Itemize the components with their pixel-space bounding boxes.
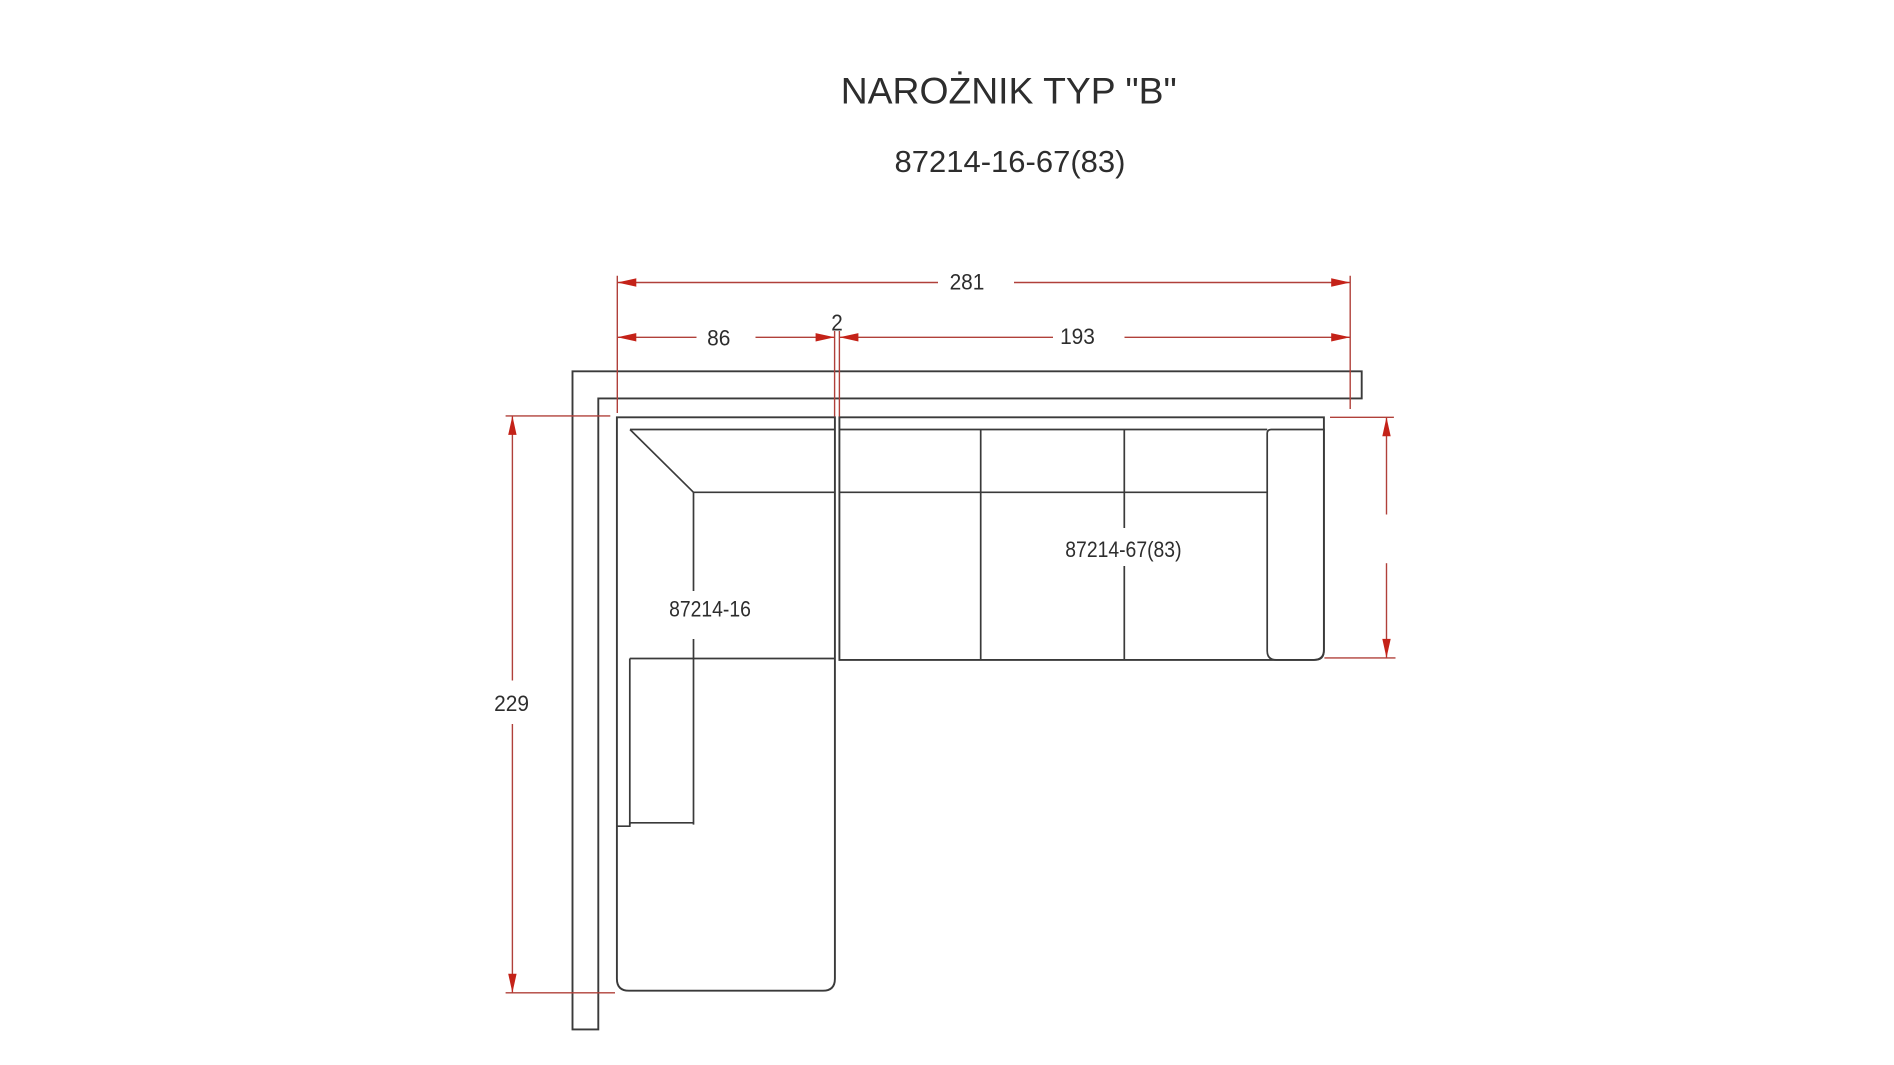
svg-text:86: 86	[707, 326, 730, 351]
svg-text:193: 193	[1060, 325, 1095, 350]
svg-text:NAROŻNIK TYP "B": NAROŻNIK TYP "B"	[841, 70, 1177, 112]
svg-text:87214-67(83): 87214-67(83)	[1065, 538, 1181, 562]
svg-text:229: 229	[494, 691, 529, 716]
svg-text:87214-16-67(83): 87214-16-67(83)	[895, 144, 1126, 179]
svg-text:281: 281	[950, 270, 985, 295]
svg-text:2: 2	[831, 309, 843, 335]
svg-text:87214-16: 87214-16	[669, 598, 751, 622]
